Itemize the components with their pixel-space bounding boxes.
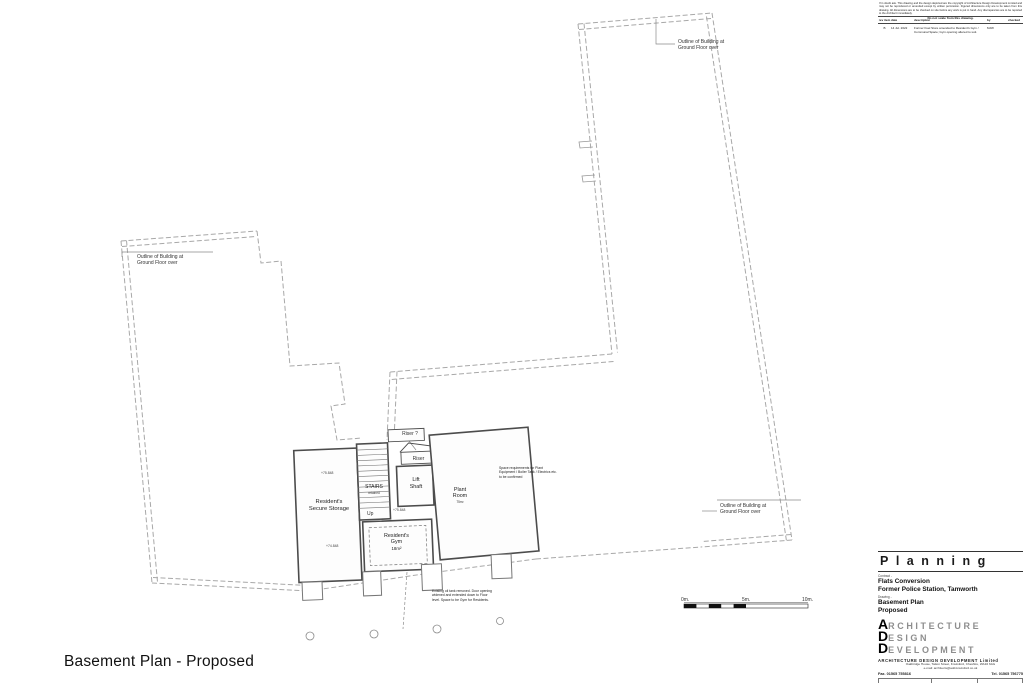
outline-label-bottom-right: Outline of Building at Ground Floor over (720, 503, 800, 515)
floor-plan-geometry (0, 0, 1024, 683)
logo-word-development: EVELOPMENT (888, 645, 976, 655)
gym-note: Existing oil tank removed. Door opening … (432, 589, 496, 602)
room-label-lift-shaft: Lift Shaft (398, 477, 434, 490)
level-storage-upper: +75.848 (321, 471, 333, 475)
stairs-note: retained (356, 491, 392, 495)
title-block: Planning Contract - Flats Conversion For… (878, 551, 1023, 683)
drawing-title: Basement Plan - Proposed (64, 653, 254, 671)
revision-row: B 14 Jul. 2022 Former Fuel Store amended… (878, 24, 1023, 34)
plant-note: Space requirements for Plant Equipment /… (499, 466, 557, 479)
plant-area: 75m² (438, 500, 482, 504)
scale-label-10: 10m. (802, 597, 813, 603)
logo-letter-d2: D (878, 640, 888, 656)
room-label-stairs: STAIRS retained (356, 485, 392, 495)
room-label-plant: Plant Room 75m² (438, 487, 482, 504)
drawing-name-1: Basement Plan (878, 599, 1023, 607)
outline-label-top-right: Outline of Building at Ground Floor over (678, 39, 758, 51)
firm-fax: Fax. 01565 755816 (878, 672, 911, 676)
firm-email: e-mail: architects@add-knutsford.co.uk (878, 667, 1023, 671)
riser-query-label: Riser ? (392, 431, 428, 437)
survey-circles (306, 618, 504, 641)
scale-label-0: 0m. (681, 597, 689, 603)
disclaimer-text: If in doubt ask. This drawing and the de… (879, 2, 1022, 16)
revision-table-header: rev item date description by checked (878, 16, 1023, 24)
field-drawn: Drawn - MJW (879, 679, 932, 683)
scale-bar (684, 603, 808, 609)
riser-label: Riser (403, 456, 434, 462)
level-storage-lower: +74.848 (326, 544, 338, 548)
field-checked: Checked - * (932, 679, 978, 683)
outline-label-left: Outline of Building at Ground Floor over (137, 254, 217, 266)
revision-table: rev item date description by checked B 1… (878, 16, 1023, 34)
logo-word-architecture: RCHITECTURE (888, 621, 981, 631)
status-planning: Planning (878, 551, 1023, 572)
level-stair-landing: +75.848 (393, 508, 405, 512)
contract-name-2: Former Police Station, Tamworth (878, 586, 1023, 594)
logo-word-design: ESIGN (888, 633, 929, 643)
contract-name-1: Flats Conversion (878, 578, 1023, 586)
stairs-up-label: Up (367, 511, 387, 517)
room-secure-storage (294, 448, 362, 582)
firm-logo: ARCHITECTURE DESIGN DEVELOPMENT (878, 619, 1023, 655)
field-approved: approved - * (978, 679, 1024, 683)
drawing-sheet: Outline of Building at Ground Floor over… (0, 0, 1024, 683)
drawing-name-2: Proposed (878, 607, 1023, 615)
scale-label-5: 5m. (742, 597, 750, 603)
firm-tel: Tel. 01565 756775 (991, 672, 1023, 676)
room-label-secure-storage: Resident's Secure Storage (296, 499, 362, 513)
gym-area: 18m² (368, 546, 425, 552)
title-block-fields: Drawn - MJW Checked - * approved - * Sca… (878, 678, 1023, 683)
riser-roof (400, 442, 432, 452)
room-label-gym: Resident's Gym 18m² (368, 533, 425, 552)
